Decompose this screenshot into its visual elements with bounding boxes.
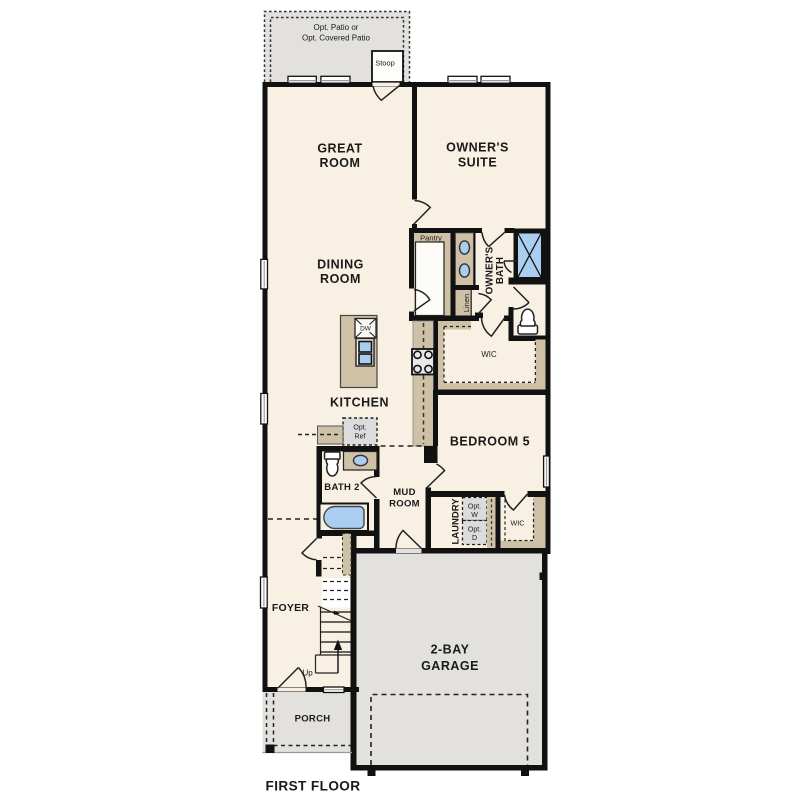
svg-text:PORCH: PORCH: [295, 714, 331, 725]
svg-text:GREAT: GREAT: [317, 142, 362, 156]
svg-text:W: W: [471, 512, 478, 519]
svg-text:LAUNDRY: LAUNDRY: [451, 498, 462, 545]
svg-text:SUITE: SUITE: [458, 156, 497, 170]
svg-text:Stoop: Stoop: [375, 59, 395, 68]
svg-text:BEDROOM 5: BEDROOM 5: [450, 435, 530, 449]
svg-text:Linen: Linen: [462, 294, 471, 312]
svg-text:BATH 2: BATH 2: [324, 482, 359, 493]
svg-text:Opt. Patio or: Opt. Patio or: [314, 23, 359, 32]
svg-text:DW: DW: [360, 326, 372, 333]
svg-text:BATH: BATH: [495, 257, 506, 284]
svg-text:FIRST FLOOR: FIRST FLOOR: [265, 779, 360, 794]
svg-text:Ref: Ref: [355, 434, 366, 441]
svg-text:OWNER'S: OWNER'S: [446, 141, 509, 155]
svg-text:Opt.: Opt.: [468, 504, 481, 511]
svg-text:ROOM: ROOM: [320, 156, 361, 170]
svg-text:D: D: [472, 535, 477, 542]
svg-text:Up: Up: [303, 669, 314, 678]
svg-text:Opt. Covered Patio: Opt. Covered Patio: [302, 34, 371, 43]
svg-text:ROOM: ROOM: [389, 499, 420, 510]
svg-text:WIC: WIC: [481, 350, 497, 359]
svg-text:DINING: DINING: [317, 258, 364, 272]
svg-text:Opt.: Opt.: [353, 425, 366, 432]
svg-text:WIC: WIC: [511, 519, 525, 528]
svg-text:ROOM: ROOM: [320, 272, 361, 286]
svg-text:OWNER'S: OWNER'S: [485, 246, 496, 294]
svg-text:KITCHEN: KITCHEN: [330, 396, 389, 410]
svg-text:2-BAY: 2-BAY: [431, 643, 470, 657]
svg-text:Pantry: Pantry: [420, 234, 442, 243]
svg-text:FOYER: FOYER: [272, 602, 309, 614]
svg-text:MUD: MUD: [393, 487, 416, 498]
svg-text:GARAGE: GARAGE: [421, 659, 479, 673]
svg-text:Opt.: Opt.: [468, 527, 481, 534]
